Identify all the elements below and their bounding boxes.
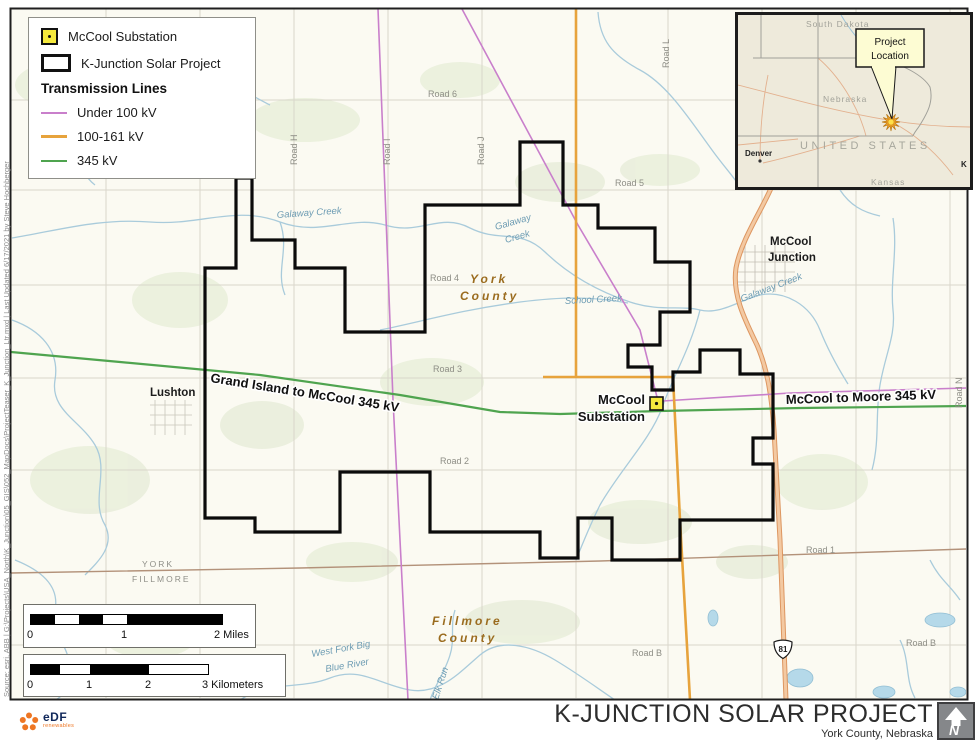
- road-4-label: Road 4: [430, 273, 459, 283]
- scalebar-miles-tick-0: 0: [27, 629, 33, 641]
- project-boundary-swatch-icon: [41, 54, 71, 72]
- legend-item-345kv: 345 kV: [41, 153, 245, 168]
- road-i-label: Road I: [382, 138, 392, 165]
- inset-denver-dot: [758, 159, 761, 162]
- road-2-label: Road 2: [440, 456, 469, 466]
- road-n-label: Road N: [954, 377, 964, 408]
- source-note: Source: esri, ABB | G:\Projects\USA_Nort…: [2, 7, 11, 697]
- scalebar-miles-tick-2: 2 Miles: [214, 629, 249, 641]
- scalebar-kilometers: 0 1 2 3 Kilometers: [23, 654, 286, 697]
- road-h-label: Road H: [289, 134, 299, 165]
- north-arrow: N: [937, 702, 975, 740]
- road-b-east-label: Road B: [906, 638, 936, 648]
- mccool-junction-label-1: McCool: [770, 236, 812, 248]
- legend-transmission-header: Transmission Lines: [41, 81, 245, 96]
- inset-locator-map: South Dakota Nebraska Kansas UNITED STAT…: [735, 12, 973, 190]
- scalebar-km-tick-1: 1: [86, 679, 92, 691]
- inset-callout-label-1: Project: [874, 37, 905, 48]
- edf-logo-subtext: renewables: [43, 724, 74, 730]
- inset-callout-label-2: Location: [871, 51, 909, 62]
- mccool-junction-label-2: Junction: [768, 252, 816, 264]
- road-l-label: Road L: [661, 39, 671, 68]
- legend-item-substation: McCool Substation: [41, 28, 245, 45]
- inset-kansas-label: Kansas: [871, 177, 905, 187]
- 100-161kv-swatch-icon: [41, 135, 67, 138]
- legend-item-under-100kv: Under 100 kV: [41, 105, 245, 120]
- legend-project-label: K-Junction Solar Project: [81, 56, 220, 71]
- legend-item-project: K-Junction Solar Project: [41, 54, 245, 72]
- map-document: Road 6 Road 5 Road 4 Road 3 Road 2 Road …: [0, 0, 980, 748]
- edf-renewables-logo: eDF renewables: [18, 711, 74, 733]
- legend-under-100kv-label: Under 100 kV: [77, 105, 157, 120]
- fillmore-county-label-2: County: [438, 631, 497, 645]
- inset-svg: South Dakota Nebraska Kansas UNITED STAT…: [738, 15, 970, 187]
- under-100kv-swatch-icon: [41, 112, 67, 114]
- fillmore-county-label-1: Fillmore: [432, 614, 503, 628]
- substation-swatch-icon: [41, 28, 58, 45]
- road-1-label: Road 1: [806, 545, 835, 555]
- scalebar-miles-tick-1: 1: [121, 629, 127, 641]
- york-boundary-label: YORK: [142, 559, 174, 569]
- scalebar-km-tick-2: 2: [145, 679, 151, 691]
- fillmore-boundary-label: FILLMORE: [132, 574, 191, 584]
- inset-partial-city-label: K: [961, 160, 967, 169]
- legend-item-100-161kv: 100-161 kV: [41, 129, 245, 144]
- inset-south-dakota-label: South Dakota: [806, 19, 870, 29]
- inset-nebraska-label: Nebraska: [823, 94, 867, 104]
- legend-substation-label: McCool Substation: [68, 29, 177, 44]
- road-j-label: Road J: [476, 136, 486, 165]
- road-6-label: Road 6: [428, 89, 457, 99]
- substation-label-1: McCool: [598, 392, 645, 407]
- legend-100-161kv-label: 100-161 kV: [77, 129, 144, 144]
- page-title: K-JUNCTION SOLAR PROJECT: [554, 700, 933, 729]
- york-county-label-2: County: [460, 289, 519, 303]
- edf-pinwheel-icon: [18, 711, 40, 733]
- inset-denver-label: Denver: [745, 149, 772, 158]
- substation-label-2: Substation: [578, 409, 645, 424]
- scalebar-km-tick-0: 0: [27, 679, 33, 691]
- page-subtitle: York County, Nebraska: [821, 728, 933, 740]
- edf-logo-text: eDF: [43, 711, 74, 723]
- scalebar-miles-bar: [30, 614, 223, 625]
- mccool-substation-marker: [650, 397, 663, 410]
- inset-united-states-label: UNITED STATES: [800, 140, 931, 152]
- york-county-label-1: York: [470, 272, 508, 286]
- 345kv-swatch-icon: [41, 160, 67, 162]
- north-arrow-letter: N: [949, 722, 960, 738]
- us81-shield-number: 81: [779, 645, 788, 654]
- scalebar-miles: 0 1 2 Miles: [23, 604, 256, 648]
- road-3-label: Road 3: [433, 364, 462, 374]
- scalebar-km-tick-3: 3 Kilometers: [202, 679, 263, 691]
- road-b-west-label: Road B: [632, 648, 662, 658]
- legend: McCool Substation K-Junction Solar Proje…: [28, 17, 256, 179]
- scalebar-kilometers-bar: [30, 664, 209, 675]
- legend-345kv-label: 345 kV: [77, 153, 117, 168]
- road-5-label: Road 5: [615, 178, 644, 188]
- north-arrow-icon: N: [939, 704, 973, 738]
- lushton-label: Lushton: [150, 387, 195, 399]
